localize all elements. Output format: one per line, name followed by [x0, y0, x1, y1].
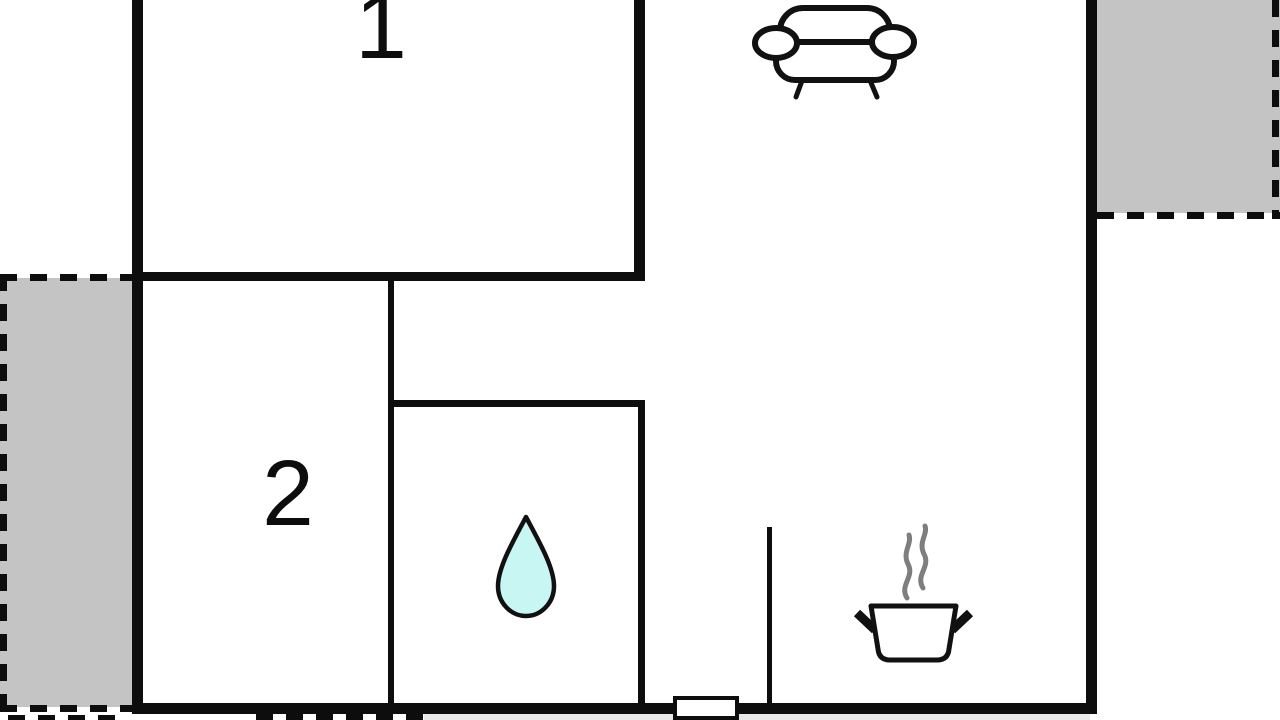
terrace-top-right [1097, 0, 1280, 213]
steam-curl-right [921, 526, 926, 588]
door-marker [675, 698, 737, 718]
wall-kitchen-stub [767, 527, 772, 703]
wall-outer-right [1086, 0, 1097, 714]
wall-bathroom-right [638, 407, 645, 703]
wall-outer-left [132, 0, 143, 714]
floor-plan: 1 2 [0, 0, 1280, 720]
steam-icon [905, 526, 926, 598]
sofa-armrest-right [872, 27, 914, 57]
sofa-armrest-left [755, 28, 797, 58]
room-1-label: 1 [355, 0, 407, 78]
bottom-edge-strip [424, 713, 1090, 720]
cooking-pot-icon [857, 606, 970, 660]
room-2-label: 2 [262, 441, 314, 545]
wall-room2-right [388, 281, 394, 703]
water-drop-icon [498, 517, 554, 616]
terrace-left [0, 278, 132, 707]
steam-curl-left [905, 535, 910, 598]
sofa-icon [755, 8, 914, 97]
floor-plan-page: 1 2 [0, 0, 1280, 720]
wall-room1-right [634, 0, 645, 281]
wall-bathroom-top [394, 400, 645, 407]
wall-outer-bottom [132, 703, 1097, 714]
pot-body [871, 606, 956, 660]
wall-room1-bottom [143, 272, 645, 281]
